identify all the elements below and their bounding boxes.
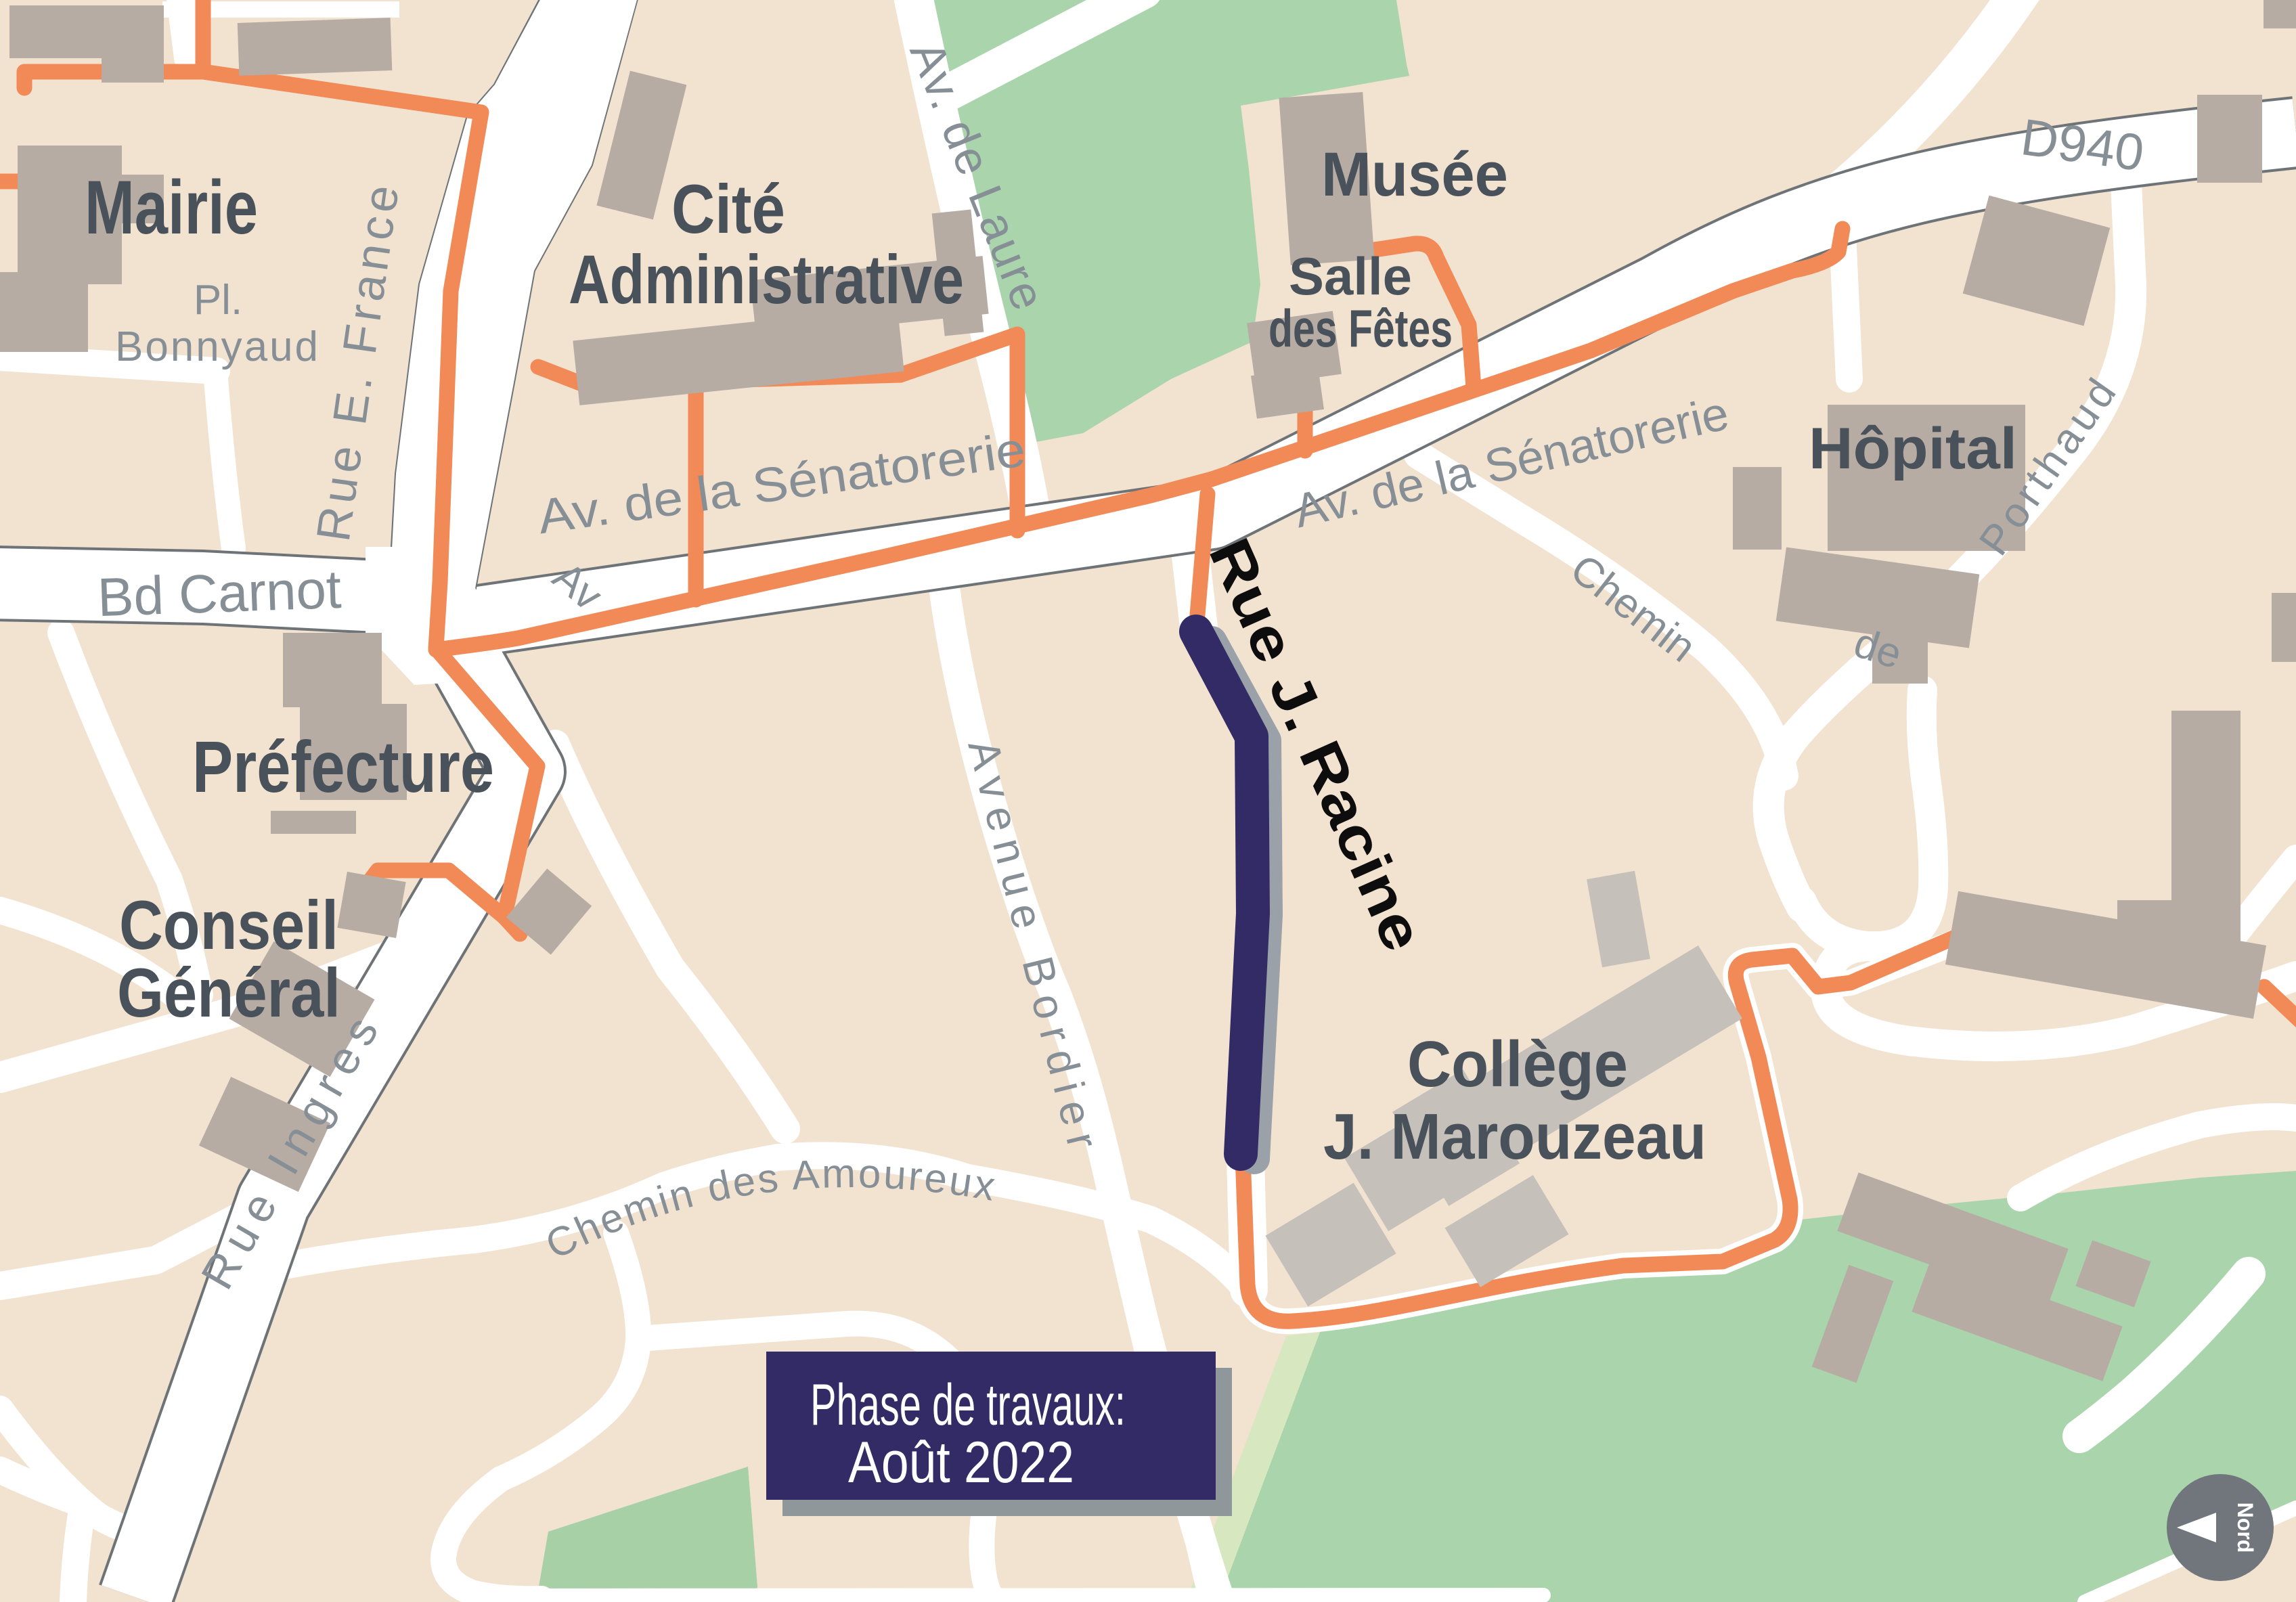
- svg-text:J. Marouzeau: J. Marouzeau: [1323, 1100, 1706, 1173]
- svg-text:Août 2022: Août 2022: [848, 1430, 1074, 1495]
- svg-text:Phase de travaux:: Phase de travaux:: [810, 1373, 1126, 1438]
- svg-text:Salle: Salle: [1289, 246, 1412, 306]
- svg-text:Pl.: Pl.: [194, 277, 242, 324]
- svg-text:Collège: Collège: [1407, 1028, 1628, 1100]
- svg-text:Mairie: Mairie: [85, 165, 258, 250]
- svg-text:Administrative: Administrative: [569, 241, 964, 318]
- svg-text:Cité: Cité: [671, 171, 785, 248]
- svg-text:Bonnyaud: Bonnyaud: [115, 324, 318, 370]
- svg-text:Musée: Musée: [1321, 140, 1508, 209]
- svg-text:Nord: Nord: [2233, 1503, 2257, 1553]
- svg-text:Général: Général: [117, 954, 340, 1031]
- svg-text:des Fêtes: des Fêtes: [1268, 298, 1453, 358]
- svg-text:Bd Carnot: Bd Carnot: [96, 559, 342, 628]
- svg-text:Préfecture: Préfecture: [192, 726, 494, 807]
- svg-text:Conseil: Conseil: [119, 887, 338, 964]
- svg-text:Hôpital: Hôpital: [1809, 416, 2017, 481]
